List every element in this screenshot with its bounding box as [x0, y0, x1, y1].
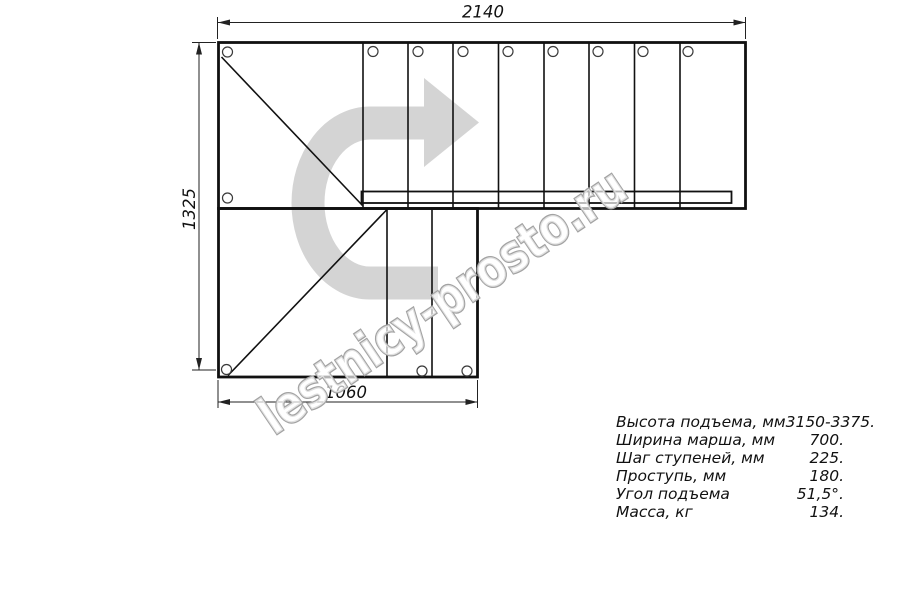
spec-value: 51,5°. — [797, 486, 844, 504]
stair-plan-drawing-page: 2140 1325 1060 lestnicy-prosto.ru Высота… — [0, 0, 900, 600]
spec-label: Высота подъема, мм — [616, 414, 786, 432]
spec-row: Высота подъема, мм 3150-3375. — [616, 414, 844, 432]
spec-label: Масса, кг — [616, 504, 693, 522]
turn-arrow-head — [424, 78, 479, 167]
spec-value: 700. — [809, 432, 844, 450]
dimension-top: 2140 — [218, 3, 746, 40]
spec-row: Проступь, мм 180. — [616, 468, 844, 486]
spec-value: 134. — [809, 504, 844, 522]
spec-value: 3150-3375. — [786, 414, 875, 432]
spec-value: 225. — [809, 450, 844, 468]
dimension-left: 1325 — [180, 43, 216, 371]
spec-label: Проступь, мм — [616, 468, 726, 486]
spec-table: Высота подъема, мм 3150-3375. Ширина мар… — [616, 414, 844, 521]
spec-row: Шаг ступеней, мм 225. — [616, 450, 844, 468]
stair-plan-outline — [219, 43, 746, 378]
spec-row: Масса, кг 134. — [616, 504, 844, 522]
spec-label: Ширина марша, мм — [616, 432, 775, 450]
dimension-top-label: 2140 — [462, 3, 504, 22]
dimension-left-label: 1325 — [180, 188, 199, 230]
spec-label: Шаг ступеней, мм — [616, 450, 765, 468]
spec-value: 180. — [809, 468, 844, 486]
spec-row: Угол подъема 51,5°. — [616, 486, 844, 504]
spec-label: Угол подъема — [616, 486, 730, 504]
spec-row: Ширина марша, мм 700. — [616, 432, 844, 450]
